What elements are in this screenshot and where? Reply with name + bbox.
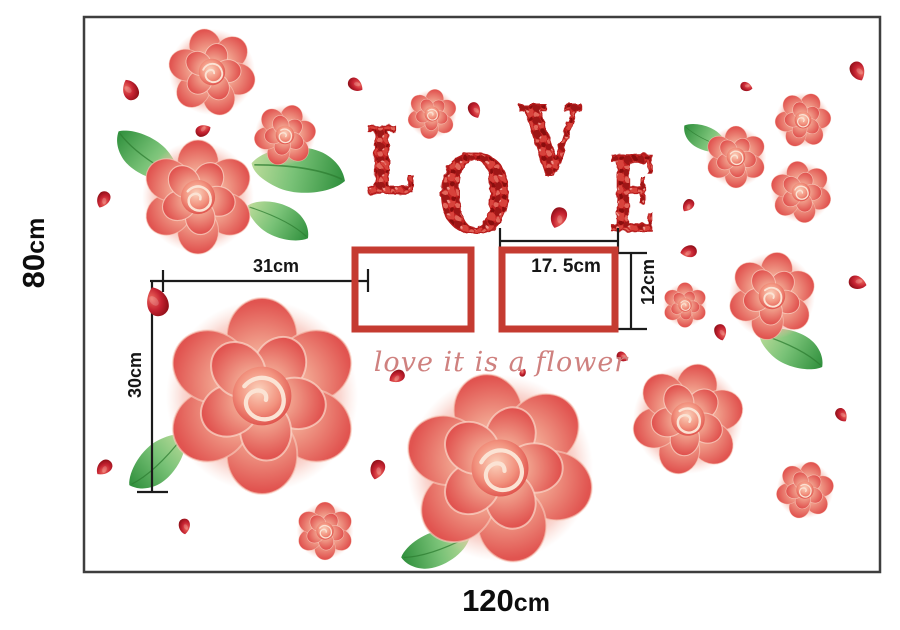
love-letter-E: E: [609, 133, 656, 256]
width-unit: cm: [514, 589, 550, 617]
width-label: 120cm: [462, 583, 550, 618]
script-caption: love it is a flower: [374, 347, 629, 378]
height-label: 80cm: [16, 218, 51, 289]
product-spec-image: LOVE 31cm 30cm 17. 5cm 12cm love it is a…: [0, 0, 900, 630]
dim-label-17-5cm: 17. 5cm: [531, 256, 601, 277]
width-value: 120: [462, 583, 514, 618]
dim-label-30cm: 30cm: [125, 352, 145, 398]
love-letter-V: V: [519, 85, 581, 199]
height-unit: cm: [22, 218, 50, 254]
dim-label-12cm: 12cm: [638, 259, 658, 305]
height-value: 80: [16, 254, 51, 288]
love-letter-L: L: [365, 107, 415, 215]
dim-label-31cm: 31cm: [253, 256, 299, 276]
artwork-canvas: LOVE 31cm 30cm 17. 5cm 12cm love it is a…: [0, 0, 900, 630]
